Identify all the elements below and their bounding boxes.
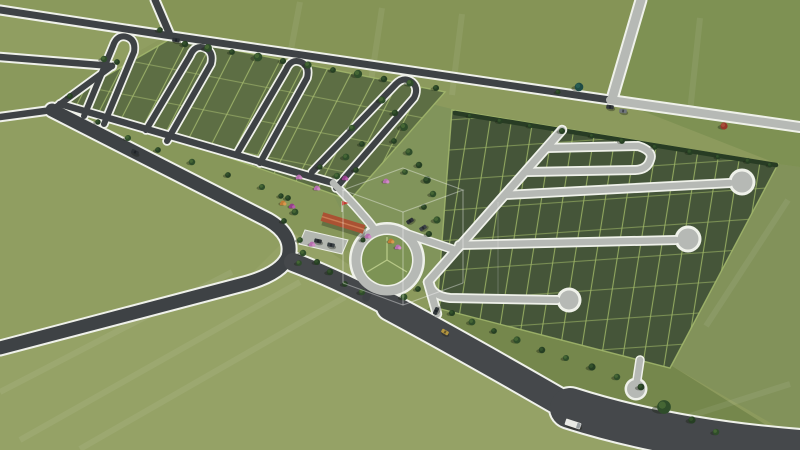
culdesac-bulb-3 (560, 291, 579, 310)
subdivision-render (0, 0, 800, 450)
aerial-render-canvas (0, 0, 800, 450)
south-stub-street (637, 360, 640, 380)
culdesac-bulb-2 (678, 229, 699, 250)
culdesac-bulb-1 (732, 172, 753, 193)
